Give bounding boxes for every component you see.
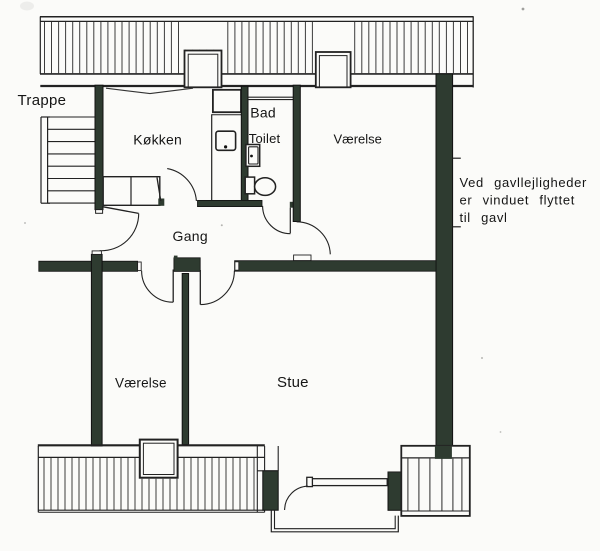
svg-text:er vinduet flyttet: er vinduet flyttet bbox=[460, 193, 575, 208]
svg-text:Køkken: Køkken bbox=[133, 131, 182, 147]
svg-text:Bad: Bad bbox=[250, 105, 276, 121]
svg-text:Ved gavllejligheder: Ved gavllejligheder bbox=[460, 175, 588, 190]
svg-text:Værelse: Værelse bbox=[334, 131, 382, 146]
svg-text:Stue: Stue bbox=[277, 374, 309, 391]
svg-text:Værelse: Værelse bbox=[115, 376, 167, 391]
svg-text:Gang: Gang bbox=[173, 228, 208, 244]
svg-text:til gavl: til gavl bbox=[460, 210, 508, 225]
svg-text:Trappe: Trappe bbox=[18, 92, 67, 109]
